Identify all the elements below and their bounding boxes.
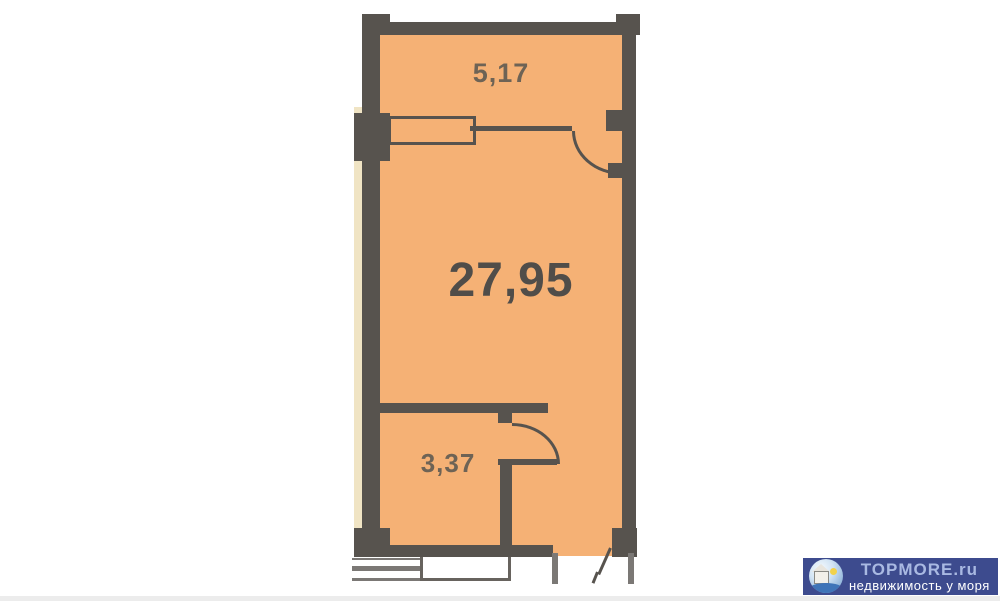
wall-left-column <box>354 113 390 161</box>
partition-line <box>470 126 572 131</box>
wall-cap-top-right <box>616 14 640 35</box>
topmore-logo-icon <box>809 559 843 593</box>
sun-icon <box>830 568 837 575</box>
entrance-jamb-left <box>552 553 558 584</box>
area-label-main-room: 27,95 <box>401 253 621 308</box>
partition-glazing <box>388 116 476 145</box>
floor-plan: 5,17 27,95 3,37 TOPMORE.ru недвижимость … <box>0 0 1000 603</box>
balcony-window-panel <box>420 554 511 581</box>
entrance-door-leaf-tick <box>592 571 599 583</box>
watermark-subtitle: недвижимость у моря <box>849 579 990 593</box>
wall-right-door-jamb <box>606 110 622 131</box>
watermark-title: TOPMORE.ru <box>849 561 990 579</box>
left-exterior-strip <box>354 107 362 531</box>
area-label-bathroom: 3,37 <box>398 448 498 479</box>
entrance-jamb-right <box>628 553 634 584</box>
bathroom-wall-top <box>375 403 548 413</box>
watermark-topmore: TOPMORE.ru недвижимость у моря <box>803 558 998 595</box>
sea-icon <box>809 583 843 593</box>
window-line <box>352 578 420 581</box>
bathroom-door-jamb <box>498 413 512 423</box>
watermark-text: TOPMORE.ru недвижимость у моря <box>849 561 990 592</box>
wall-right <box>622 35 636 548</box>
bathroom-wall-right <box>500 462 512 548</box>
bottom-edge-artifact <box>0 596 1000 601</box>
wall-bottom <box>362 545 553 557</box>
area-label-hallway: 5,17 <box>431 58 571 89</box>
window-line <box>352 566 420 571</box>
window-line <box>352 558 420 560</box>
wall-top <box>362 22 640 35</box>
wall-left <box>362 35 380 548</box>
wall-cap-top-left <box>362 14 390 35</box>
